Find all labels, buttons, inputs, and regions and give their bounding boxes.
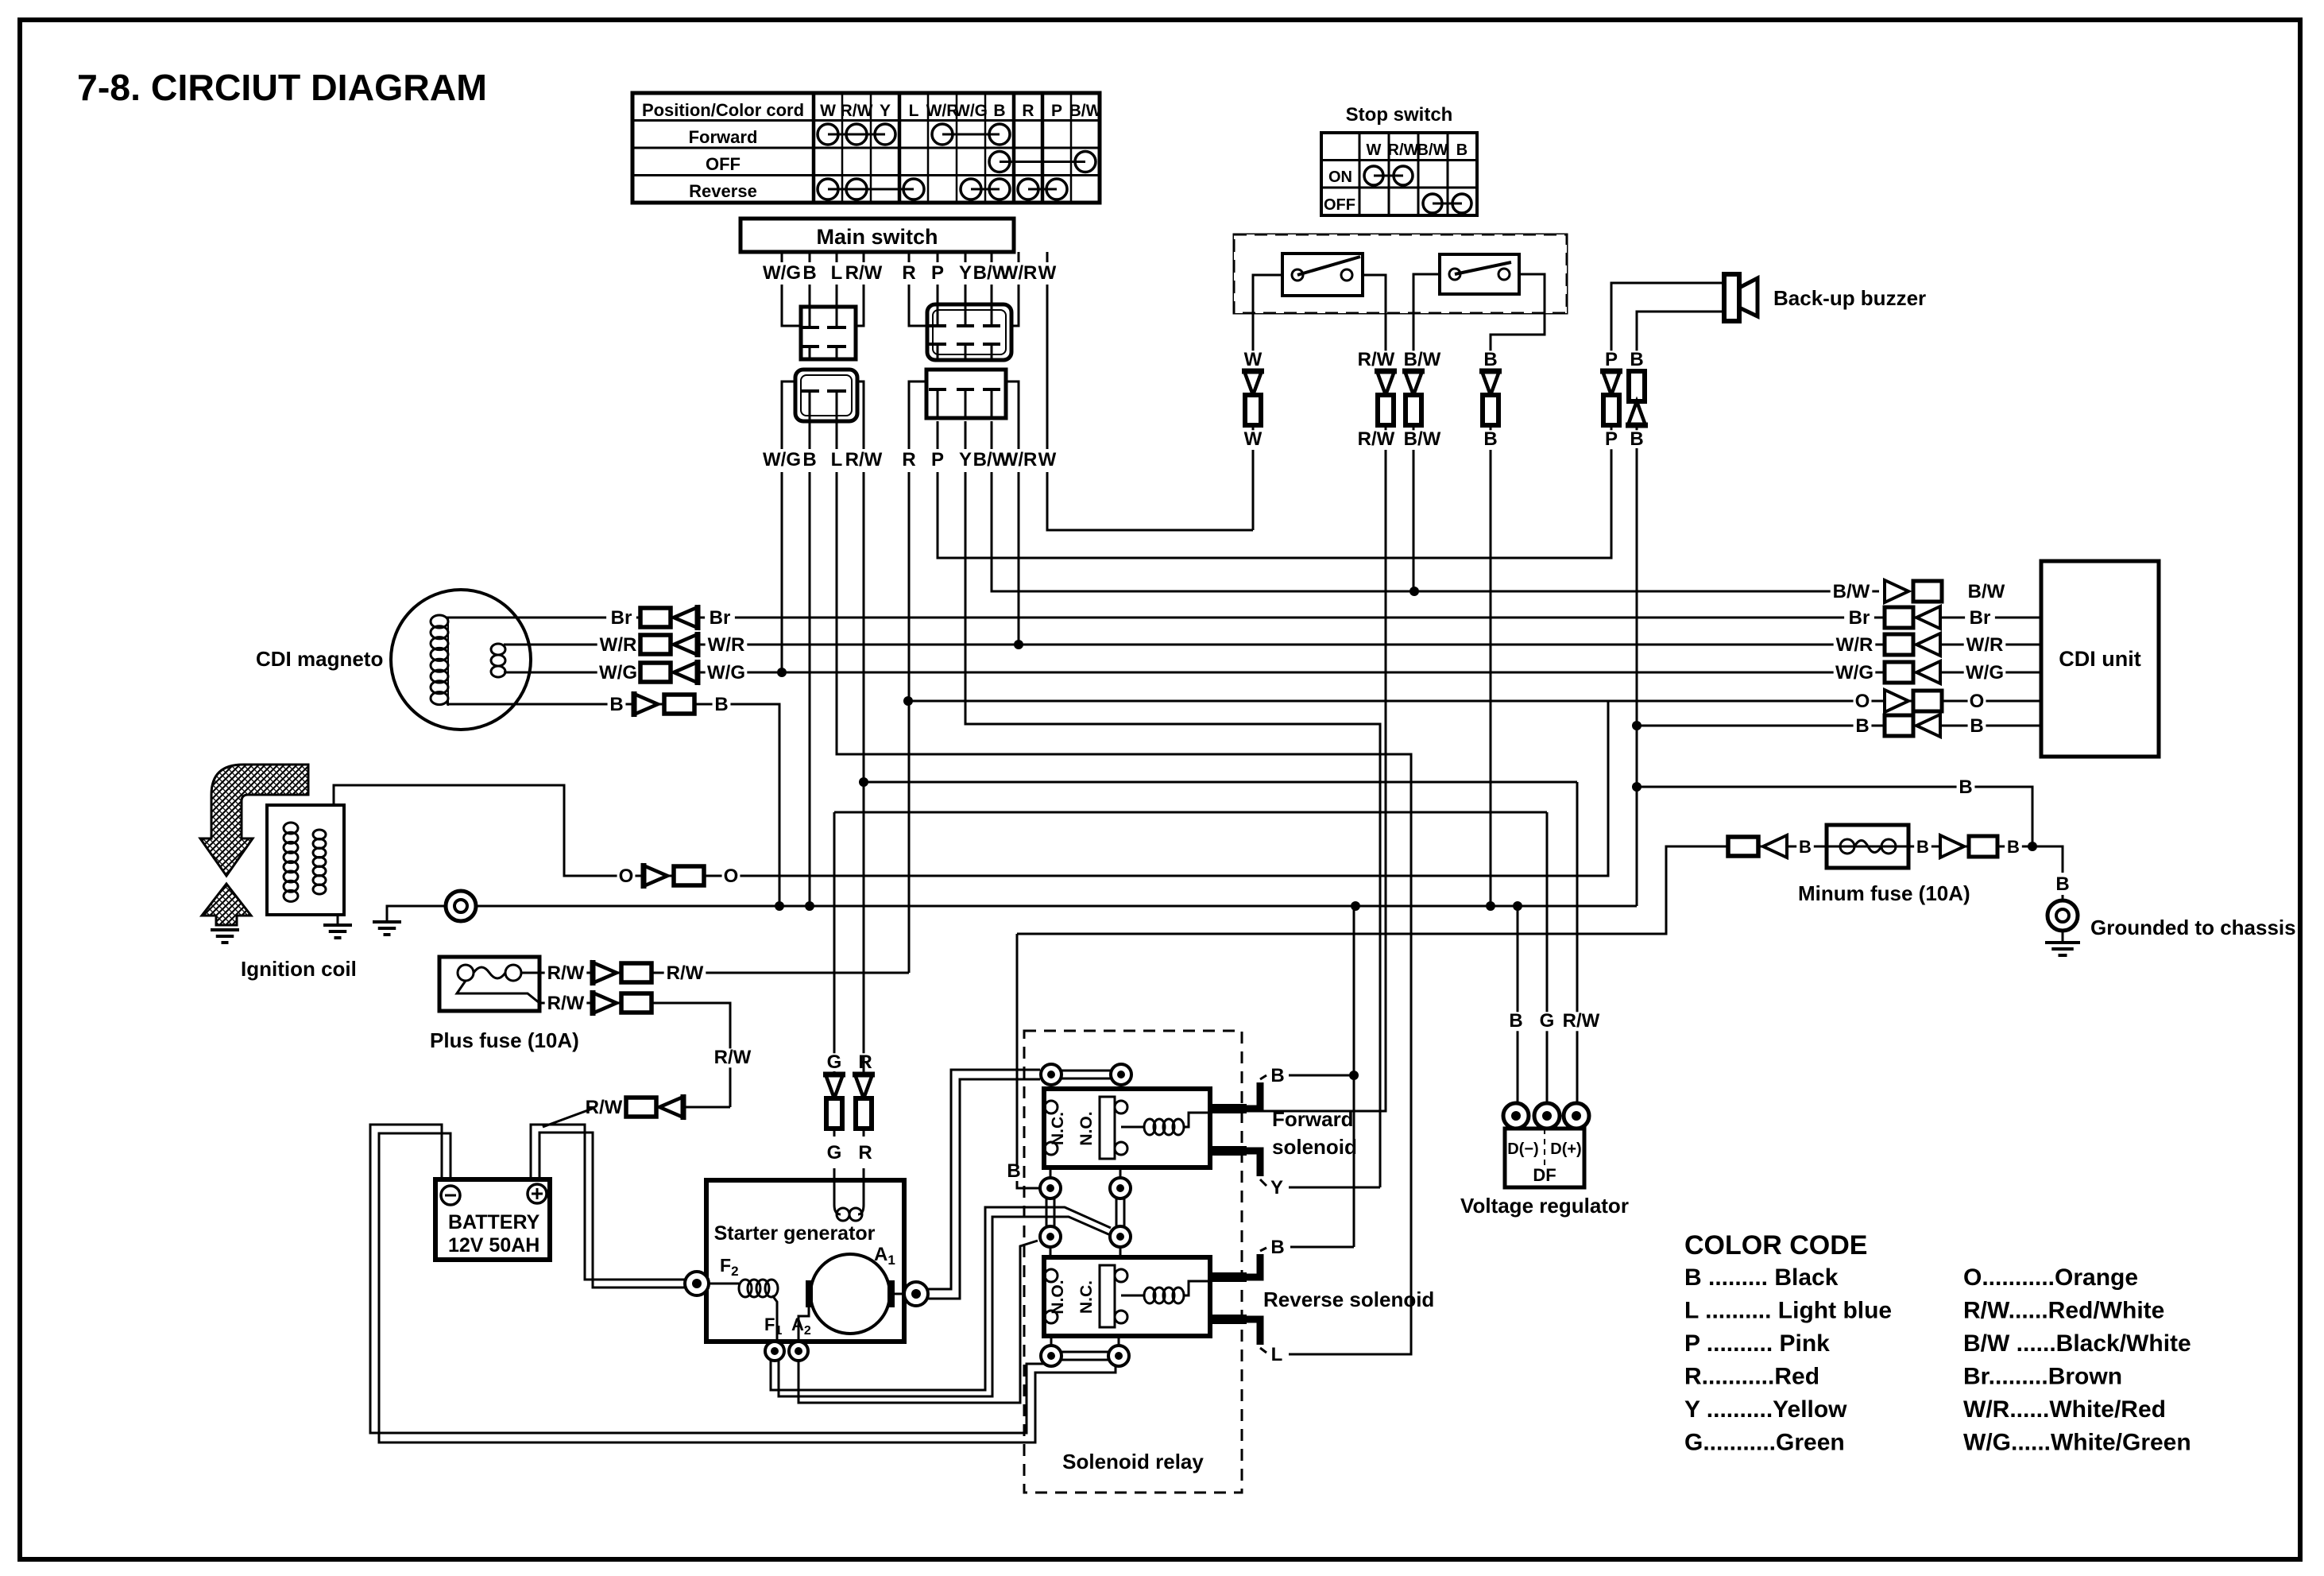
svg-text:B/W: B/W — [1968, 581, 2005, 602]
svg-text:B: B — [609, 694, 623, 715]
svg-text:R...........Red: R...........Red — [1684, 1364, 1819, 1390]
svg-text:B/W: B/W — [1833, 581, 1870, 602]
svg-text:Br: Br — [1849, 607, 1870, 629]
svg-text:COLOR CODE: COLOR CODE — [1684, 1230, 1867, 1260]
svg-text:B: B — [1483, 349, 1497, 370]
svg-text:R/W: R/W — [845, 449, 883, 470]
svg-text:W/G......White/Green: W/G......White/Green — [1963, 1430, 2191, 1456]
svg-text:Stop switch: Stop switch — [1346, 104, 1453, 126]
svg-text:W/G: W/G — [599, 662, 637, 683]
svg-text:R/W: R/W — [1563, 1010, 1600, 1032]
svg-text:DF: DF — [1533, 1165, 1556, 1185]
svg-text:W: W — [1244, 349, 1263, 370]
svg-text:B/W: B/W — [1069, 102, 1102, 120]
svg-text:B: B — [714, 694, 728, 715]
svg-text:O: O — [619, 865, 634, 887]
svg-text:W/G: W/G — [763, 449, 801, 470]
svg-text:R: R — [902, 449, 915, 470]
svg-text:R/W: R/W — [845, 262, 883, 284]
svg-text:Br: Br — [611, 607, 632, 629]
svg-text:Br: Br — [1970, 607, 1991, 629]
svg-text:W/R: W/R — [1000, 262, 1038, 284]
svg-text:D(+): D(+) — [1550, 1140, 1581, 1158]
svg-text:solenoid: solenoid — [1272, 1135, 1357, 1159]
svg-text:R/W: R/W — [1358, 349, 1395, 370]
svg-text:B/W: B/W — [1417, 141, 1448, 159]
svg-text:P: P — [1605, 428, 1618, 450]
svg-text:G: G — [827, 1051, 842, 1073]
svg-text:Br: Br — [710, 607, 731, 629]
svg-text:W/G: W/G — [954, 102, 988, 120]
svg-text:B ......... Black: B ......... Black — [1684, 1264, 1839, 1291]
svg-text:L: L — [1271, 1344, 1283, 1365]
svg-text:R/W: R/W — [547, 993, 585, 1014]
svg-text:B/W ......Black/White: B/W ......Black/White — [1963, 1330, 2191, 1357]
svg-text:BATTERY: BATTERY — [448, 1211, 540, 1233]
svg-text:L: L — [831, 262, 843, 284]
svg-text:W/R: W/R — [1000, 449, 1038, 470]
svg-text:B: B — [1916, 837, 1929, 857]
svg-text:Voltage regulator: Voltage regulator — [1460, 1194, 1629, 1218]
svg-text:O: O — [724, 865, 739, 887]
svg-text:W/R: W/R — [1966, 634, 2004, 656]
svg-text:B: B — [2007, 837, 2020, 857]
svg-text:L: L — [909, 102, 919, 120]
svg-text:CDI unit: CDI unit — [2059, 647, 2140, 671]
svg-text:D(−): D(−) — [1507, 1140, 1538, 1158]
svg-text:R/W: R/W — [586, 1097, 623, 1118]
svg-text:Reverse: Reverse — [689, 181, 757, 201]
svg-text:7-8. CIRCIUT DIAGRAM: 7-8. CIRCIUT DIAGRAM — [77, 67, 487, 108]
svg-text:W/R: W/R — [708, 634, 745, 656]
svg-text:Main switch: Main switch — [816, 225, 938, 249]
svg-text:B/W: B/W — [1404, 428, 1441, 450]
svg-text:B: B — [1270, 1065, 1284, 1086]
svg-text:B: B — [1007, 1160, 1020, 1182]
svg-text:Solenoid relay: Solenoid relay — [1062, 1450, 1204, 1473]
svg-text:R: R — [1022, 102, 1034, 120]
svg-text:Br.........Brown: Br.........Brown — [1963, 1364, 2122, 1390]
svg-text:R/W: R/W — [1388, 141, 1419, 159]
svg-text:W: W — [1367, 141, 1382, 159]
svg-text:R/W: R/W — [841, 102, 873, 120]
svg-text:W/G: W/G — [707, 662, 745, 683]
svg-text:O: O — [1970, 691, 1985, 712]
svg-text:O...........Orange: O...........Orange — [1963, 1264, 2138, 1291]
svg-text:Position/Color cord: Position/Color cord — [642, 100, 804, 120]
svg-text:P .......... Pink: P .......... Pink — [1684, 1330, 1830, 1357]
svg-text:N.O.: N.O. — [1049, 1280, 1067, 1314]
svg-text:B: B — [1456, 141, 1467, 159]
svg-text:R/W: R/W — [714, 1047, 752, 1068]
svg-text:Y: Y — [959, 262, 972, 284]
svg-text:N.C.: N.C. — [1077, 1280, 1096, 1314]
svg-text:R/W: R/W — [1358, 428, 1395, 450]
svg-text:W/R: W/R — [1836, 634, 1874, 656]
svg-text:O: O — [1855, 691, 1870, 712]
svg-text:N.O.: N.O. — [1077, 1111, 1096, 1145]
svg-text:R/W: R/W — [547, 962, 585, 984]
svg-text:Y ..........Yellow: Y ..........Yellow — [1684, 1396, 1847, 1423]
svg-text:Starter generator: Starter generator — [714, 1222, 876, 1245]
svg-text:Y: Y — [880, 102, 891, 120]
svg-text:Minum fuse (10A): Minum fuse (10A) — [1798, 881, 1970, 905]
svg-text:W: W — [1038, 262, 1057, 284]
svg-text:R: R — [858, 1142, 872, 1164]
svg-text:B: B — [1630, 349, 1643, 370]
svg-text:R: R — [858, 1051, 872, 1073]
svg-text:W/G: W/G — [763, 262, 801, 284]
svg-text:P: P — [931, 262, 944, 284]
svg-text:B: B — [1855, 715, 1869, 737]
svg-text:Back-up buzzer: Back-up buzzer — [1773, 286, 1926, 310]
svg-text:B: B — [802, 262, 816, 284]
svg-text:ON: ON — [1328, 168, 1352, 186]
svg-text:OFF: OFF — [1324, 196, 1355, 214]
svg-text:B: B — [1270, 1237, 1284, 1258]
svg-text:W: W — [1038, 449, 1057, 470]
svg-text:G...........Green: G...........Green — [1684, 1430, 1845, 1456]
svg-text:L: L — [831, 449, 843, 470]
svg-text:B: B — [1509, 1010, 1522, 1032]
svg-text:B/W: B/W — [1404, 349, 1441, 370]
svg-text:Ignition coil: Ignition coil — [241, 957, 357, 981]
svg-text:R: R — [902, 262, 915, 284]
svg-text:Y: Y — [1270, 1177, 1283, 1198]
svg-text:W/R: W/R — [600, 634, 637, 656]
svg-text:P: P — [1605, 349, 1618, 370]
svg-text:Plus fuse (10A): Plus fuse (10A) — [430, 1028, 579, 1052]
svg-text:B: B — [1483, 428, 1497, 450]
svg-text:B: B — [1970, 715, 1983, 737]
svg-text:OFF: OFF — [706, 154, 741, 174]
svg-text:B: B — [993, 102, 1005, 120]
svg-text:Grounded to chassis: Grounded to chassis — [2090, 916, 2296, 939]
svg-text:W/G: W/G — [1966, 662, 2004, 683]
svg-text:Y: Y — [959, 449, 972, 470]
svg-text:Reverse solenoid: Reverse solenoid — [1263, 1288, 1434, 1311]
svg-text:B: B — [802, 449, 816, 470]
svg-text:G: G — [1540, 1010, 1555, 1032]
svg-text:W/R......White/Red: W/R......White/Red — [1963, 1396, 2166, 1423]
svg-text:B: B — [2055, 873, 2069, 895]
svg-text:B: B — [1630, 428, 1643, 450]
svg-text:B: B — [1959, 776, 1972, 798]
svg-text:W: W — [820, 102, 836, 120]
svg-text:P: P — [931, 449, 944, 470]
svg-text:W: W — [1244, 428, 1263, 450]
svg-text:R/W......Red/White: R/W......Red/White — [1963, 1298, 2164, 1324]
svg-text:L .......... Light blue: L .......... Light blue — [1684, 1298, 1892, 1324]
svg-text:Forward: Forward — [1272, 1107, 1354, 1131]
svg-text:R/W: R/W — [667, 962, 704, 984]
svg-text:W/G: W/G — [1835, 662, 1874, 683]
svg-text:P: P — [1051, 102, 1062, 120]
svg-text:CDI magneto: CDI magneto — [256, 647, 383, 671]
svg-text:Forward: Forward — [689, 127, 758, 147]
svg-text:N.C.: N.C. — [1049, 1112, 1067, 1145]
svg-text:12V 50AH: 12V 50AH — [448, 1234, 539, 1257]
svg-text:B: B — [1799, 837, 1812, 857]
svg-text:G: G — [827, 1142, 842, 1164]
